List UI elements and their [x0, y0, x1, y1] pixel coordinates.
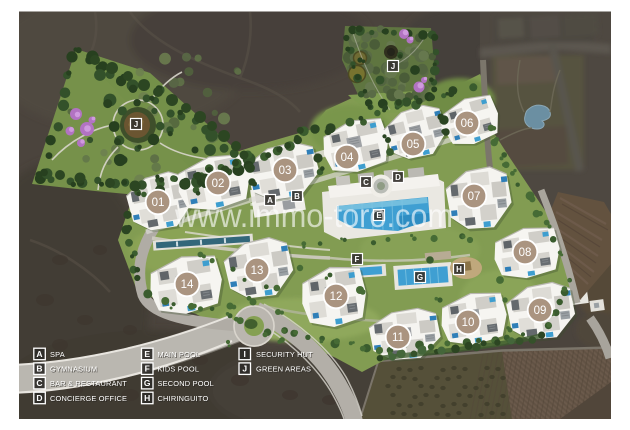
svg-text:MAIN POOL: MAIN POOL	[158, 350, 201, 359]
svg-text:F: F	[145, 364, 150, 374]
svg-text:CHIRINGUITO: CHIRINGUITO	[158, 394, 209, 403]
svg-text:GYMNASIUM: GYMNASIUM	[50, 365, 97, 374]
svg-text:G: G	[417, 273, 423, 282]
svg-text:06: 06	[461, 118, 474, 130]
svg-text:E: E	[144, 349, 150, 359]
svg-text:H: H	[456, 265, 462, 274]
svg-text:C: C	[36, 378, 42, 388]
svg-text:J: J	[134, 120, 138, 129]
svg-text:A: A	[36, 349, 42, 359]
svg-text:03: 03	[279, 165, 292, 177]
svg-text:09: 09	[534, 305, 547, 317]
svg-text:KIDS POOL: KIDS POOL	[158, 365, 200, 374]
svg-text:G: G	[144, 378, 151, 388]
svg-text:D: D	[36, 393, 42, 403]
svg-text:H: H	[144, 393, 150, 403]
svg-text:www.immo-toro.com: www.immo-toro.com	[174, 197, 453, 234]
svg-text:F: F	[355, 255, 360, 264]
svg-text:11: 11	[392, 332, 404, 344]
svg-text:D: D	[395, 173, 401, 182]
svg-text:SECOND POOL: SECOND POOL	[158, 379, 214, 388]
svg-text:B: B	[36, 364, 42, 374]
svg-text:SPA: SPA	[50, 350, 65, 359]
svg-text:10: 10	[462, 317, 475, 329]
svg-text:J: J	[242, 364, 247, 374]
svg-text:CONCIERGE OFFICE: CONCIERGE OFFICE	[50, 394, 127, 403]
svg-text:01: 01	[152, 197, 165, 209]
svg-text:GREEN AREAS: GREEN AREAS	[256, 365, 311, 374]
svg-text:04: 04	[341, 152, 354, 164]
svg-text:02: 02	[212, 178, 225, 190]
svg-text:07: 07	[468, 191, 481, 203]
svg-text:I: I	[244, 349, 246, 359]
svg-text:14: 14	[181, 279, 194, 291]
svg-text:05: 05	[407, 139, 420, 151]
svg-text:12: 12	[330, 291, 343, 303]
svg-text:BAR & RESTAURANT: BAR & RESTAURANT	[50, 379, 127, 388]
svg-text:13: 13	[251, 265, 264, 277]
svg-text:J: J	[391, 62, 395, 71]
svg-text:SECURITY HUT: SECURITY HUT	[256, 350, 313, 359]
svg-text:08: 08	[519, 247, 532, 259]
svg-text:C: C	[363, 178, 369, 187]
